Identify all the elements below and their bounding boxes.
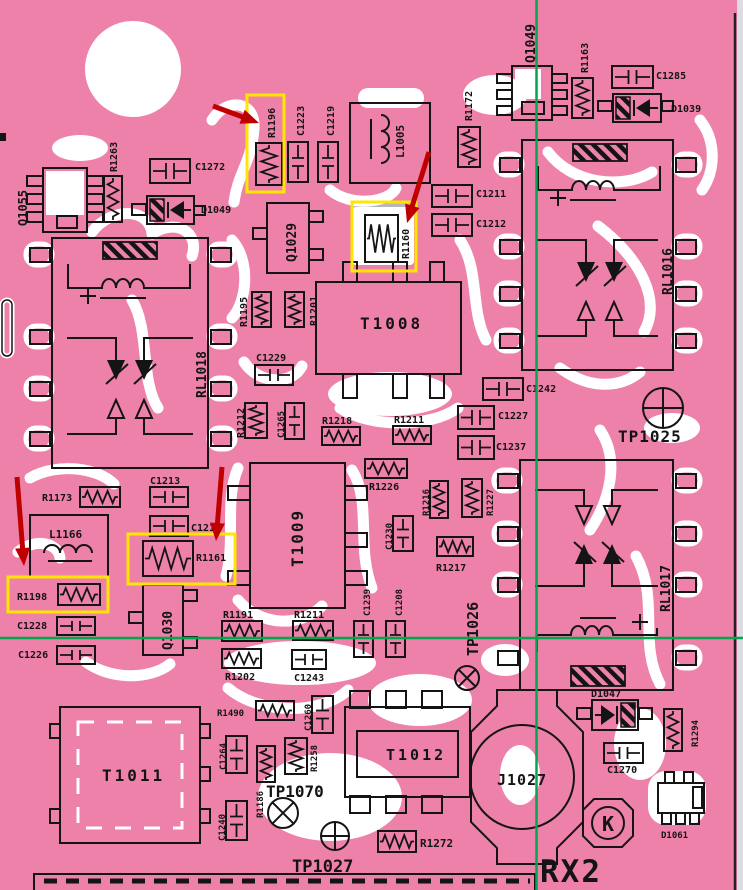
transformer-t1011: T1011 [50,707,210,843]
resistor-zigzag [434,483,445,516]
r1201-label: R1201 [309,296,320,326]
border-strip [737,0,743,890]
resistor-r1161: R1161 [143,541,226,576]
r1211-label: R1211 [394,415,424,426]
q1030-label: Q1030 [161,611,176,650]
capacitor-c1208: C1208 [386,589,405,657]
capacitor-c1240: C1240 [218,801,247,841]
tp1070-label: TP1070 [266,782,324,801]
relay-pad [498,474,518,488]
r1258-label: R1258 [310,745,320,772]
c1260-label: C1260 [304,704,314,731]
resistor-zigzag [289,294,300,325]
relay-pad [676,474,696,488]
r1272-label: R1272 [420,837,453,850]
copper-pour-circle [85,21,181,117]
capacitor-plates [435,189,469,203]
resistor-r1227: R1227 [462,479,496,517]
capacitor-c1219: C1219 [318,106,338,182]
resistor-r1272: R1272 [378,831,453,852]
c1272-label: C1272 [195,162,225,173]
c1212-label: C1212 [476,219,506,230]
d1061-label: D1061 [661,831,688,841]
r1227-label: R1227 [486,489,496,516]
capacitor-plates [486,382,520,396]
coil-symbol [381,115,389,163]
tp1025-label: TP1025 [618,427,682,446]
r1263-label: R1263 [109,142,120,172]
resistor-r1226: R1226 [365,459,407,493]
ic-chip-q1049: Q1049 [497,24,567,120]
d1049-label: D1049 [201,205,231,216]
ic-pin [309,211,323,222]
resistor-zigzag [439,541,471,552]
r1172-label: R1172 [464,91,475,121]
resistor-r1211b: R1211 [293,610,333,640]
c1242-label: C1242 [526,384,556,395]
resistor-zigzag [60,588,98,601]
r1198-label: R1198 [17,592,47,603]
r1202-label: R1202 [225,672,255,683]
resistor-zigzag [367,463,405,474]
silkscreen-text-rx2: RX2 [540,854,602,890]
r1196-label: R1196 [267,108,278,138]
relay-pad [500,334,520,348]
diode-triangle [170,201,184,219]
c1264-label: C1264 [219,742,229,770]
relay-pad [498,578,518,592]
resistor-r1198: R1198 [17,584,100,605]
d1047-label: D1047 [591,689,621,700]
lead-pad [577,708,591,719]
polarity-hatch [573,144,627,161]
ic-pin [552,90,567,99]
c1237-label: C1237 [496,442,526,453]
contact-wire [67,338,116,360]
capacitor-c1227: C1227 [458,406,528,429]
plus-sign [550,190,566,206]
annotation-arrow [15,477,30,566]
capacitor-c1213: C1213 [150,476,188,507]
relay-pad [211,248,231,262]
transformer-t1009: T1009 [228,463,367,608]
resistor-r1212: R1212 [236,403,267,438]
ic-marker [522,102,544,114]
capacitor-c1237: C1237 [458,436,526,459]
copper-trace [86,662,170,676]
arrow-shaft [217,467,222,532]
pcb-layout-canvas: Q1055Q1049Q1029Q1030D1061RL1018RL1016RL1… [0,0,743,890]
ic-paste-area [46,171,84,215]
cathode-hatch [150,199,164,221]
k_marker-label: K [602,812,614,836]
c1265-label: C1265 [277,411,287,438]
tp1026-label: TP1026 [464,602,482,656]
ic-pin [87,194,103,204]
edge-tick [0,133,6,141]
capacitor-plates [60,621,92,631]
capacitor-c1242: C1242 [483,378,556,400]
plus-sign [80,288,96,304]
contact-arrow-filled [575,544,593,564]
ic-pin [129,612,143,623]
c1211-label: C1211 [476,189,506,200]
lead-pad [598,101,612,111]
capacitor-plates [322,145,334,179]
relay-pad [211,382,231,396]
c1223-label: C1223 [296,106,307,136]
ic-chip-q1029: Q1029 [253,203,323,273]
resistor-zigzag [324,431,358,442]
copper-trace [358,88,424,108]
capacitor-c1211: C1211 [432,185,506,207]
r1294-label: R1294 [691,719,701,747]
coil-symbol [68,264,190,288]
c1226-label: C1226 [18,650,48,661]
j1027-label: J1027 [497,771,547,789]
test-point-cross [458,669,475,686]
transformer-pin [200,809,210,823]
inductor-l1005: L1005 [350,103,430,183]
transformer-pin [422,796,442,813]
r1195-label: R1195 [239,297,250,327]
c1270-label: C1270 [607,765,637,776]
c1208-label: C1208 [395,589,405,616]
resistor-zigzag [256,294,267,325]
contact-wire [537,240,586,262]
diode-d1039: D1039 [598,94,701,122]
ic-pin [183,590,197,601]
relay-pad [30,382,50,396]
relay-pad [30,330,50,344]
cathode-hatch [621,703,635,727]
resistor-r1294: R1294 [664,709,701,751]
transformer-pin [350,691,370,708]
copper-trace [460,240,486,340]
c1240-label: C1240 [218,814,228,841]
relay-pad [676,240,696,254]
capacitor-c1223: C1223 [288,106,308,182]
relay-pad [500,240,520,254]
c1239-label: C1239 [363,589,373,616]
r1216-label: R1216 [422,489,432,516]
transformer-pin [50,809,60,823]
edge-pad-halo [2,300,12,356]
r1160-label: R1160 [401,229,412,259]
relay-pad [676,578,696,592]
r1191-label: R1191 [223,610,253,621]
ic-pin [87,176,103,186]
inductor-body [350,103,430,183]
copper-trace [598,226,650,332]
relay-pad [30,248,50,262]
connector-outline [34,874,535,890]
contact-arrow-open [578,302,594,320]
r1218-label: R1218 [322,416,352,427]
capacitor-c1272: C1272 [150,159,225,183]
rl1016-label: RL1016 [661,248,676,295]
relay-pad [498,527,518,541]
resistor-r1201: R1201 [285,292,320,327]
q1029-label: Q1029 [285,223,300,262]
l1166-label: L1166 [49,528,82,541]
relay-pad [676,158,696,172]
r1490-label: R1490 [217,709,244,719]
diode-triangle [601,705,615,725]
capacitor-plates [153,491,185,503]
capacitor-plates [461,440,491,455]
contact-wire [144,418,193,434]
resistor-zigzag [224,625,260,637]
relay-pad [500,287,520,301]
resistor-zigzag [249,405,262,436]
transformer-pin [430,262,444,282]
r1186-label: R1186 [256,791,266,818]
contact-arrow-open [606,302,622,320]
r1212-label: R1212 [236,408,247,438]
contact-wire [535,564,584,586]
resistor-r1216: R1216 [422,481,448,518]
resistor-r1163: R1163 [572,43,593,118]
c1227-label: C1227 [498,411,528,422]
rl1017-label: RL1017 [659,565,674,612]
relay-pad [30,432,50,446]
r1163-label: R1163 [580,43,591,73]
resistor-r1196: R1196 [256,108,282,185]
r1173-label: R1173 [42,493,72,504]
capacitor-plates [153,520,185,532]
ic-pin [27,176,43,186]
relay-rl1018: RL1018 [26,238,235,468]
contact-wire [537,320,586,336]
ic-chip-q1030: Q1030 [129,585,197,655]
relay-pad [211,330,231,344]
relay-pad [676,287,696,301]
relay-pad [676,527,696,541]
contact-wire [144,338,193,360]
pcb-board-view: Q1055Q1049Q1029Q1030D1061RL1018RL1016RL1… [0,0,743,890]
copper-trace [330,188,396,201]
resistor-zigzag [295,625,331,636]
resistor-r1217: R1217 [436,537,473,574]
resistor-r1195: R1195 [239,292,271,327]
copper-trace [228,688,348,709]
c1228-label: C1228 [17,621,47,632]
diode-d1049: D1049 [132,196,231,224]
contact-wire [535,490,584,506]
ic-chip-q1055: Q1055 [16,168,103,232]
contact-arrow-filled [603,544,621,564]
capacitor-c1228: C1228 [17,617,95,635]
c1243-label: C1243 [294,673,324,684]
resistor-zigzag [576,80,589,116]
resistor-zigzag [462,129,475,165]
r1161-label: R1161 [196,553,226,564]
t1011-label: T1011 [102,766,165,785]
capacitor-plates [461,410,491,425]
resistor-zigzag [668,711,679,749]
diode-triangle [636,99,650,117]
rx2-label: RX2 [540,854,602,890]
resistor-zigzag [466,481,478,515]
capacitor-plates [397,519,409,548]
resistor-zigzag [395,430,429,441]
r1211b-label: R1211 [294,610,324,621]
capacitor-plates [289,406,300,436]
ic-pin [309,249,323,260]
r1217-label: R1217 [436,563,466,574]
connector-j1027: J1027 [470,690,583,864]
resistor-zigzag [261,748,272,780]
transformer-pin [200,724,210,738]
ic-pin [552,106,567,115]
t1008-label: T1008 [360,314,423,333]
rl1018-label: RL1018 [195,351,210,398]
relay-pad [500,158,520,172]
capacitor-c1264: C1264 [219,736,247,773]
contact-wire [612,490,658,506]
transformer-pin [50,724,60,738]
c1229-label: C1229 [256,353,286,364]
capacitor-plates [230,804,243,837]
polarity-hatch [103,242,157,259]
cathode-hatch [616,97,630,119]
resistor-zigzag [145,548,191,569]
c1285-label: C1285 [656,71,686,82]
l1005-label: L1005 [394,125,407,158]
c1219-label: C1219 [326,106,337,136]
capacitor-plates [230,739,243,770]
relay-rl1016: RL1016 [496,140,700,370]
r1226-label: R1226 [369,482,399,493]
ic-pin [253,228,267,239]
polarity-hatch [571,666,625,686]
capacitor-c1230: C1230 [385,516,413,551]
capacitor-plates [153,163,187,179]
resistor-zigzag [380,835,414,848]
left-edge-features [0,133,12,356]
resistor-zigzag [82,491,118,503]
relay-pad [676,334,696,348]
image-right-border [735,0,743,890]
c1230-label: C1230 [385,523,395,550]
capacitor-c1285: C1285 [612,66,686,88]
relay-pad [676,651,696,665]
transformer-pin [200,767,210,781]
copper-trace [52,135,108,161]
capacitor-c1239: C1239 [354,589,373,657]
capacitor-plates [292,145,304,179]
capacitor-c1212: C1212 [432,214,506,236]
relay-pad [211,432,231,446]
t1012-label: T1012 [386,746,446,764]
contact-arrow-open [108,400,124,418]
resistor-r1173: R1173 [42,487,120,507]
ic-marker [57,216,77,228]
kiss-marker-k_marker: K [583,799,633,847]
capacitor-plates [435,218,469,232]
test-point-tp1026: TP1026 [455,602,482,690]
copper-trace [30,469,114,484]
d1039-label: D1039 [671,104,701,115]
capacitor-plates [615,70,650,84]
contact-wire [67,418,116,434]
copper-trace [700,120,712,190]
board-edge-connector [34,874,535,890]
ic-pin [552,74,567,83]
q1055-label: Q1055 [16,190,30,226]
t1009-label: T1009 [288,509,307,567]
c1213-label: C1213 [150,476,180,487]
resistor-zigzag [261,145,277,183]
capacitor-c1265: C1265 [277,403,304,439]
